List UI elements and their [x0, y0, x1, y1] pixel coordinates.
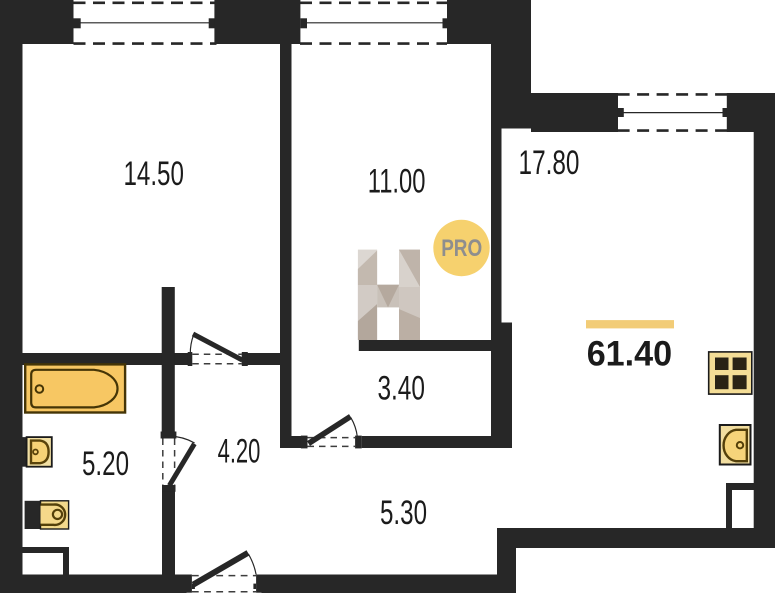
svg-text:11.00: 11.00 — [368, 162, 426, 200]
svg-text:5.30: 5.30 — [380, 494, 427, 532]
svg-text:17.80: 17.80 — [519, 144, 580, 182]
svg-text:5.20: 5.20 — [82, 445, 129, 483]
svg-text:PRO: PRO — [441, 235, 482, 262]
svg-text:14.50: 14.50 — [123, 155, 184, 193]
svg-text:61.40: 61.40 — [587, 334, 672, 373]
svg-text:4.20: 4.20 — [218, 432, 261, 470]
svg-text:3.40: 3.40 — [377, 370, 425, 408]
